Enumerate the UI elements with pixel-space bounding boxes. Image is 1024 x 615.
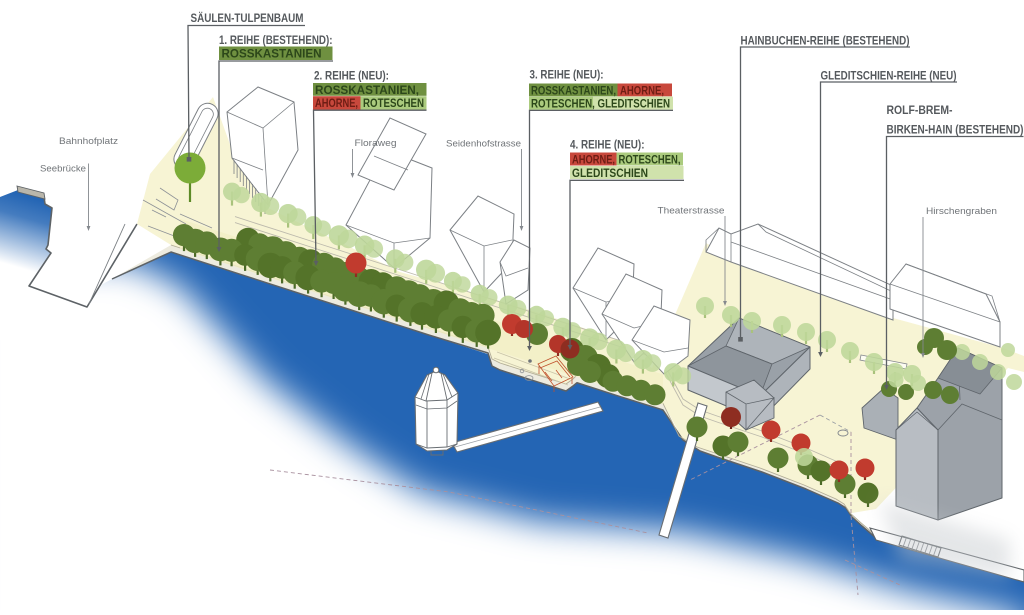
svg-text:HAINBUCHEN-REIHE (BESTEHEND): HAINBUCHEN-REIHE (BESTEHEND) — [741, 36, 910, 48]
svg-text:ROLF-BREM-: ROLF-BREM- — [887, 105, 953, 117]
svg-text:SÄULEN-TULPENBAUM: SÄULEN-TULPENBAUM — [191, 12, 304, 25]
svg-text:ROSSKASTANIEN,: ROSSKASTANIEN, — [531, 85, 616, 97]
svg-text:BIRKEN-HAIN (BESTEHEND): BIRKEN-HAIN (BESTEHEND) — [887, 125, 1024, 137]
svg-text:ROTESCHEN,: ROTESCHEN, — [619, 154, 681, 166]
svg-text:ROTESCHEN, GLEDITSCHIEN: ROTESCHEN, GLEDITSCHIEN — [531, 99, 670, 111]
svg-text:4. REIHE (NEU):: 4. REIHE (NEU): — [570, 140, 645, 152]
svg-text:Bahnhofplatz: Bahnhofplatz — [59, 136, 118, 147]
svg-text:2. REIHE (NEU):: 2. REIHE (NEU): — [314, 71, 389, 83]
svg-text:Hirschengraben: Hirschengraben — [926, 206, 997, 217]
svg-text:Theaterstrasse: Theaterstrasse — [658, 206, 725, 217]
svg-text:Floraweg: Floraweg — [355, 138, 397, 149]
svg-text:AHORNE,: AHORNE, — [572, 154, 615, 166]
svg-text:3. REIHE (NEU):: 3. REIHE (NEU): — [530, 70, 604, 82]
svg-text:ROSSKASTANIEN,: ROSSKASTANIEN, — [315, 85, 419, 97]
svg-text:GLEDITSCHIEN-REIHE (NEU): GLEDITSCHIEN-REIHE (NEU) — [821, 71, 957, 83]
svg-text:Seidenhofstrasse: Seidenhofstrasse — [446, 139, 521, 150]
svg-text:AHORNE,: AHORNE, — [315, 98, 358, 110]
svg-text:1. REIHE (BESTEHEND):: 1. REIHE (BESTEHEND): — [219, 35, 333, 47]
svg-text:Seebrücke: Seebrücke — [40, 164, 86, 175]
svg-text:ROTESCHEN: ROTESCHEN — [363, 98, 424, 110]
svg-text:GLEDITSCHIEN: GLEDITSCHIEN — [572, 168, 648, 180]
svg-text:ROSSKASTANIEN: ROSSKASTANIEN — [222, 49, 322, 61]
svg-text:AHORNE,: AHORNE, — [620, 85, 664, 97]
